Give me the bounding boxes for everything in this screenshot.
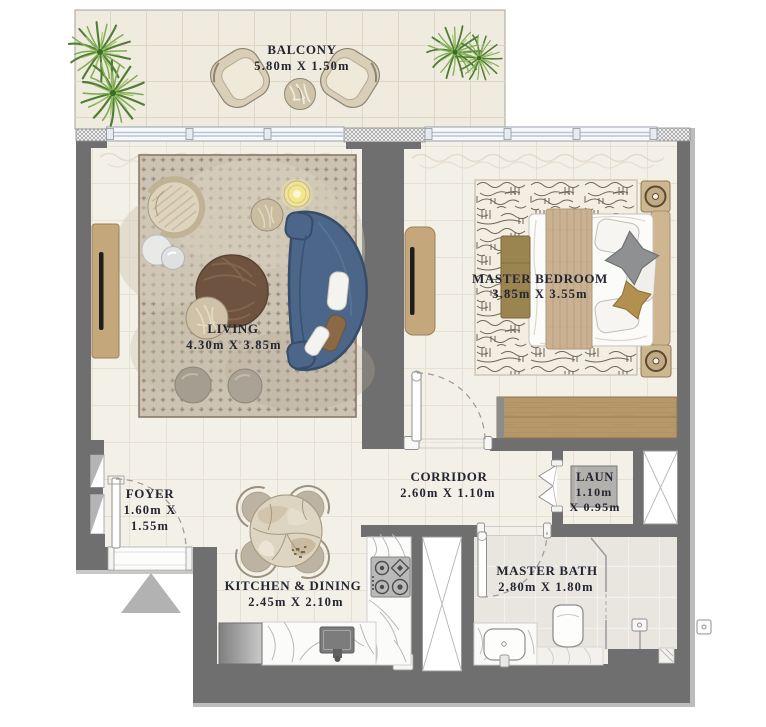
svg-text:2.60m X 1.10m: 2.60m X 1.10m [400,486,495,500]
svg-text:FOYER: FOYER [126,486,175,501]
svg-text:1.10m: 1.10m [576,485,613,499]
svg-text:2.45m X 2.10m: 2.45m X 2.10m [248,595,343,609]
svg-text:KITCHEN & DINING: KITCHEN & DINING [225,578,362,593]
svg-text:5.80m X 1.50m: 5.80m X 1.50m [254,59,349,73]
svg-text:2.80m X 1.80m: 2.80m X 1.80m [498,580,593,594]
svg-text:BALCONY: BALCONY [267,42,336,57]
svg-text:LIVING: LIVING [207,321,258,336]
svg-text:MASTER BEDROOM: MASTER BEDROOM [472,271,608,286]
svg-text:4.30m X 3.85m: 4.30m X 3.85m [186,338,281,352]
svg-text:1.55m: 1.55m [131,519,169,533]
svg-text:X 0.95m: X 0.95m [569,500,620,514]
svg-text:1.60m X: 1.60m X [124,503,177,517]
svg-text:MASTER BATH: MASTER BATH [496,563,597,578]
svg-text:3.85m X 3.55m: 3.85m X 3.55m [492,287,587,301]
svg-text:LAUN: LAUN [576,470,614,484]
svg-text:CORRIDOR: CORRIDOR [410,469,487,484]
